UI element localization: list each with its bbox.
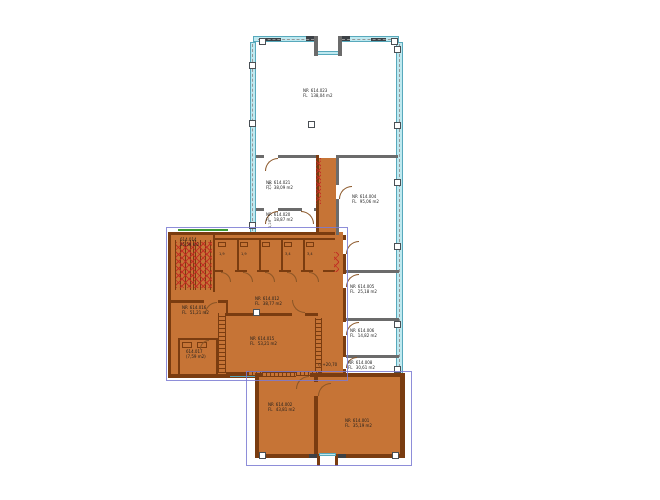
mullion-line bbox=[252, 44, 253, 231]
room-label-614-012: NRFL 614.01238,77 m2 bbox=[255, 296, 282, 306]
room-area: 38,09 m2 bbox=[274, 185, 293, 190]
mullion-line bbox=[258, 39, 314, 40]
room-label-614-014: 614.01425,58 m2 bbox=[180, 237, 199, 247]
floor-plan-canvas: NRFL 614.023138,04 m2 NRFL 614.02138,09 … bbox=[0, 0, 660, 500]
label-prefix: FL bbox=[303, 93, 309, 98]
dimension-label: 1,28 bbox=[268, 220, 272, 228]
wc-cell-label: 1,9 bbox=[241, 252, 247, 256]
wc-cell-label: 3,4 bbox=[285, 252, 291, 256]
mullion-line bbox=[342, 39, 396, 40]
door-arc bbox=[301, 211, 314, 224]
column-marker bbox=[394, 122, 401, 129]
room-area: 30,61 m2 bbox=[356, 365, 375, 370]
room-label-614-006: NRFL 614.00614,82 m2 bbox=[350, 328, 377, 338]
level-marker-icon: ◇ bbox=[318, 362, 321, 367]
wc-cell-label: 1,9 bbox=[219, 252, 225, 256]
wall-segment bbox=[256, 155, 264, 158]
column-marker bbox=[308, 121, 315, 128]
label-prefix: FL bbox=[268, 407, 274, 412]
wall-segment bbox=[346, 270, 399, 273]
red-hatch-strip bbox=[316, 158, 321, 204]
entry-notch-wall bbox=[314, 36, 318, 56]
column-marker bbox=[249, 62, 256, 69]
wall-segment bbox=[346, 318, 399, 321]
door-arc bbox=[339, 186, 352, 199]
column-marker bbox=[391, 38, 398, 45]
room-label-614-008: NRFL 614.00830,61 m2 bbox=[348, 360, 375, 370]
level-marker: ◇ +20,70 bbox=[318, 362, 337, 367]
dimension-label: 1,28 bbox=[268, 182, 272, 190]
label-prefix: FL bbox=[345, 423, 351, 428]
highlight-fill-shaft bbox=[319, 158, 336, 234]
room-area: 38,77 m2 bbox=[263, 301, 282, 306]
room-label-614-015: NRFL 614.01553,21 m2 bbox=[250, 336, 277, 346]
room-area: 51,21 m2 bbox=[190, 310, 209, 315]
room-area: 25,58 m2 bbox=[180, 242, 199, 247]
facade-left bbox=[250, 42, 256, 233]
room-area: 35,19 m2 bbox=[353, 423, 372, 428]
room-area: 95,06 m2 bbox=[360, 199, 379, 204]
room-area: 138,04 m2 bbox=[311, 93, 333, 98]
label-prefix: FL bbox=[352, 199, 358, 204]
label-prefix: FL bbox=[348, 365, 354, 370]
entry-glass bbox=[316, 51, 340, 55]
wall-segment bbox=[278, 208, 302, 211]
label-prefix: FL bbox=[182, 310, 188, 315]
room-area: 14,82 m2 bbox=[358, 333, 377, 338]
wall-segment bbox=[278, 155, 318, 158]
wall-segment bbox=[336, 155, 339, 185]
wall-segment bbox=[256, 208, 264, 211]
room-label-614-017: 614.017(7,59 m2) bbox=[186, 349, 206, 359]
column-marker bbox=[394, 179, 401, 186]
room-area: 43,81 m2 bbox=[276, 407, 295, 412]
column-marker bbox=[394, 243, 401, 250]
label-prefix: FL bbox=[350, 289, 356, 294]
room-label-614-004: NRFL 614.00495,06 m2 bbox=[352, 194, 379, 204]
room-label-614-023: NRFL 614.023138,04 m2 bbox=[303, 88, 333, 98]
room-area: (7,59 m2) bbox=[186, 354, 206, 359]
wall-segment bbox=[336, 155, 398, 158]
room-area: 25,18 m2 bbox=[358, 289, 377, 294]
label-prefix: FL bbox=[255, 301, 261, 306]
column-marker bbox=[394, 321, 401, 328]
column-marker bbox=[394, 46, 401, 53]
room-area: 53,21 m2 bbox=[258, 341, 277, 346]
level-value: +20,70 bbox=[322, 362, 337, 367]
room-label-614-005: NRFL 614.00525,18 m2 bbox=[350, 284, 377, 294]
column-marker bbox=[259, 38, 266, 45]
label-prefix: FL bbox=[250, 341, 256, 346]
column-marker bbox=[249, 120, 256, 127]
room-label-614-016: NRFL 614.01651,21 m2 bbox=[182, 305, 209, 315]
door-arc bbox=[265, 158, 278, 171]
label-prefix: FL bbox=[350, 333, 356, 338]
selection-outline bbox=[246, 371, 412, 466]
room-label-614-002: NRFL 614.00243,81 m2 bbox=[268, 402, 295, 412]
wc-cell-label: 3,4 bbox=[307, 252, 313, 256]
green-marker-line bbox=[178, 229, 228, 231]
room-label-614-001: NRFL 614.00135,19 m2 bbox=[345, 418, 372, 428]
room-area: 18,87 m2 bbox=[274, 217, 293, 222]
